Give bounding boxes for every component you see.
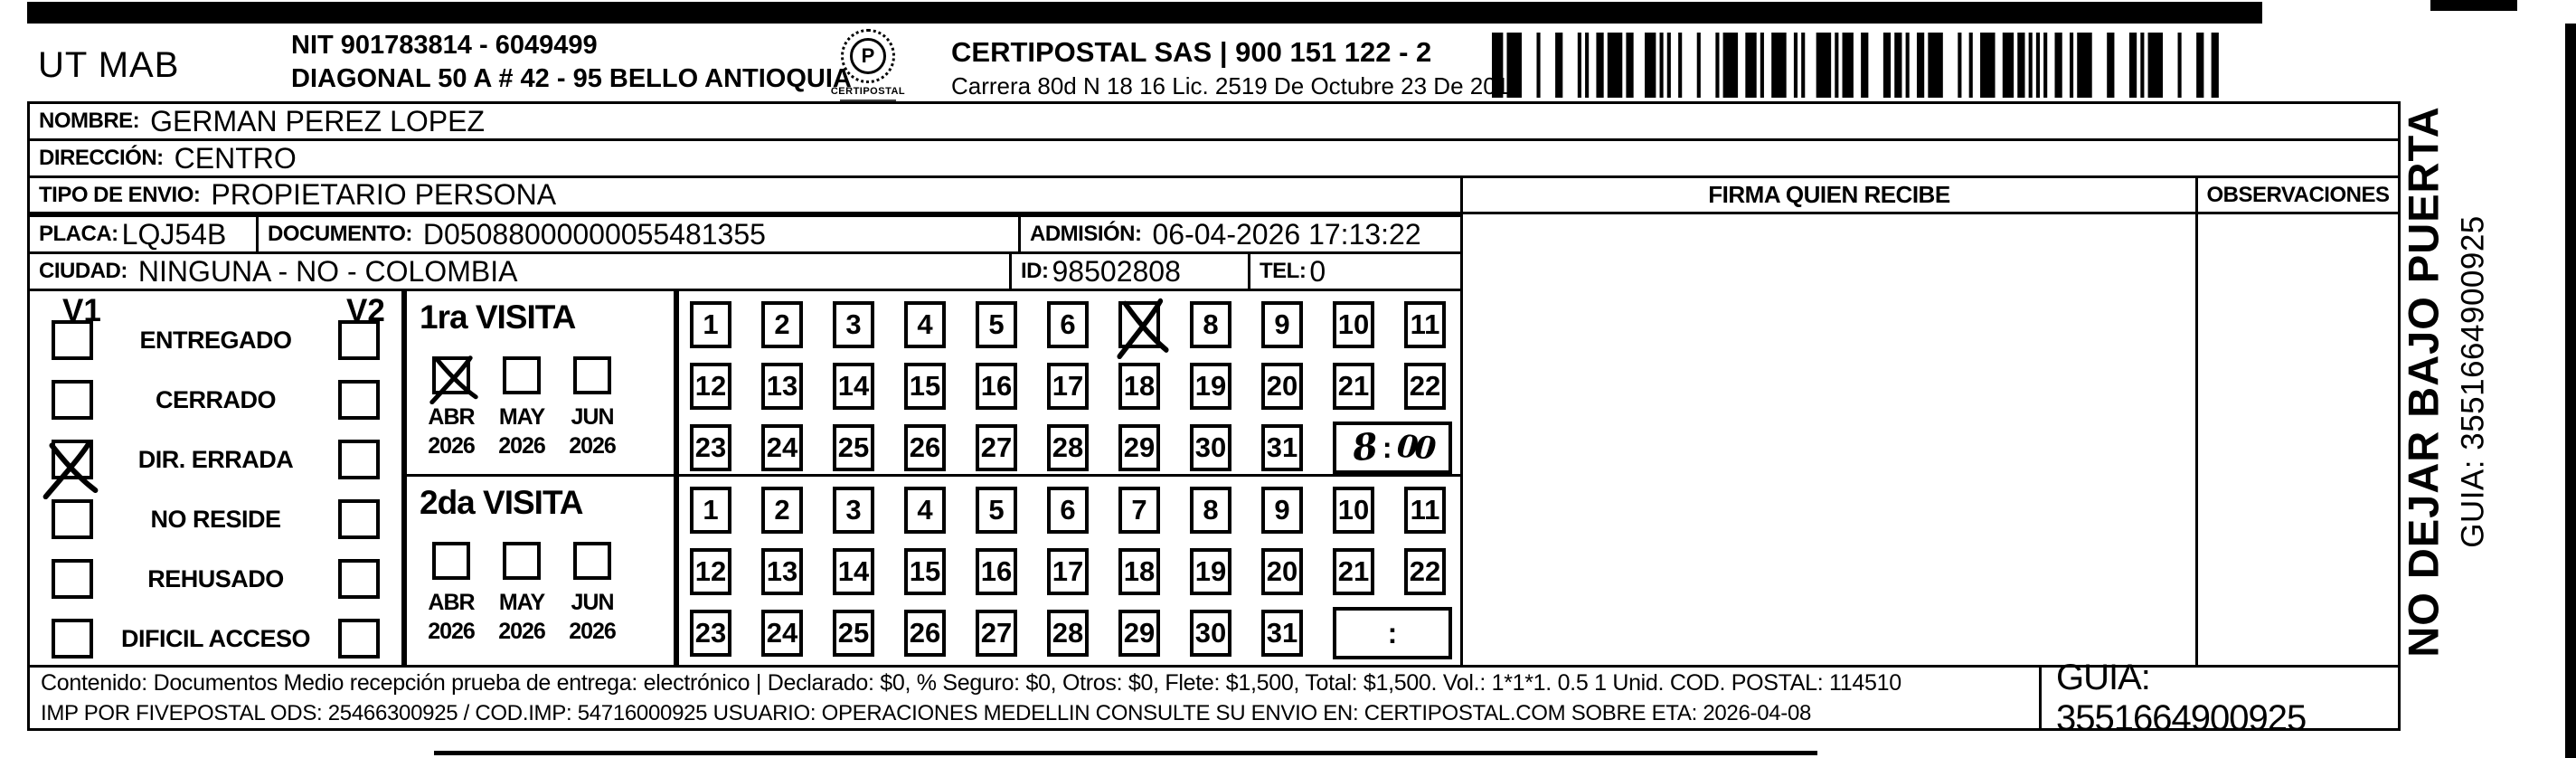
month-year: 2026 <box>569 433 616 460</box>
row-documento: DOCUMENTO: D05088000000055481355 <box>256 214 1021 254</box>
visit2-day-2[interactable]: 2 <box>761 487 803 534</box>
documento-label: DOCUMENTO: <box>268 222 412 247</box>
month-year: 2026 <box>428 433 475 460</box>
footer-guia-box: GUIA: 3551664900925 <box>2039 665 2401 731</box>
company-name: CERTIPOSTAL SAS | 900 151 122 - 2 <box>951 36 1431 69</box>
firma-header: FIRMA QUIEN RECIBE <box>1460 175 2198 214</box>
row-tel: TEL: 0 <box>1248 251 1463 291</box>
checkbox-v1-dir-errada[interactable] <box>52 440 93 479</box>
documento-value: D05088000000055481355 <box>423 218 766 251</box>
visit1-month-row: ABR2026MAY2026JUN2026 <box>420 356 624 460</box>
visit2-month-group: 2da VISITA ABR2026MAY2026JUN2026 <box>404 474 676 668</box>
visit1-month-checkbox-jun[interactable] <box>573 356 611 394</box>
visit2-day-13[interactable]: 13 <box>761 548 803 595</box>
status-row-dir-errada: DIR. ERRADA <box>30 440 401 479</box>
visit1-day-28[interactable]: 28 <box>1047 424 1089 471</box>
id-label: ID: <box>1021 259 1049 284</box>
month-label: MAY <box>499 404 544 431</box>
checkbox-v2-no-reside[interactable] <box>338 499 380 539</box>
tipo-envio-label: TIPO DE ENVIO: <box>39 183 200 208</box>
row-tipo-envio: TIPO DE ENVIO: PROPIETARIO PERSONA <box>27 175 1463 214</box>
status-row-dificil-acceso: DIFICIL ACCESO <box>30 619 401 659</box>
visit1-day-10[interactable]: 10 <box>1333 301 1374 348</box>
visit1-day-21[interactable]: 21 <box>1333 363 1374 410</box>
visit1-day-1[interactable]: 1 <box>690 301 731 348</box>
row-placa: PLACA: LQJ54B <box>27 214 259 254</box>
footer-details: Contenido: Documentos Medio recepción pr… <box>27 665 2042 731</box>
side-warning-block: NO DEJAR BAJO PUERTA GUIA: 3551664900925 <box>2399 106 2492 657</box>
visit1-day-29[interactable]: 29 <box>1118 424 1160 471</box>
visit2-day-17[interactable]: 17 <box>1047 548 1089 595</box>
checkbox-v1-entregado[interactable] <box>52 320 93 360</box>
visit1-month-checkbox-abr[interactable] <box>432 356 470 394</box>
status-row-rehusado: REHUSADO <box>30 559 401 599</box>
visit2-day-7[interactable]: 7 <box>1118 487 1160 534</box>
id-value: 98502808 <box>1052 255 1181 289</box>
footer-line1: Contenido: Documentos Medio recepción pr… <box>41 670 1901 696</box>
visit2-day-18[interactable]: 18 <box>1118 548 1160 595</box>
status-label-dificil-acceso: DIFICIL ACCESO <box>93 625 338 653</box>
visit2-day-25[interactable]: 25 <box>833 610 874 657</box>
visit2-day-11[interactable]: 11 <box>1404 487 1446 534</box>
visit2-day-15[interactable]: 15 <box>904 548 946 595</box>
nombre-value: GERMAN PEREZ LOPEZ <box>150 105 485 138</box>
scan-artifact-top <box>27 2 2262 24</box>
sender-code: UT MAB <box>38 45 179 86</box>
admision-value: 06-04-2026 17:13:22 <box>1153 218 1421 251</box>
checkbox-v2-dificil-acceso[interactable] <box>338 619 380 659</box>
logo-p-icon: P <box>850 38 886 74</box>
visit1-day-row-3: 2324252627282930318:00 <box>690 424 1460 474</box>
visit1-day-row-1: 123456891011 <box>690 301 1460 348</box>
visit2-day-19[interactable]: 19 <box>1190 548 1231 595</box>
visit1-day-14[interactable]: 14 <box>833 363 874 410</box>
firma-signature-area[interactable] <box>1460 212 2198 668</box>
checkbox-v1-no-reside[interactable] <box>52 499 93 539</box>
visit1-day-17[interactable]: 17 <box>1047 363 1089 410</box>
observaciones-header: OBSERVACIONES <box>2195 175 2401 214</box>
visit1-day-23[interactable]: 23 <box>690 424 731 471</box>
visit1-day-7[interactable] <box>1118 301 1160 348</box>
visit2-month-abr: ABR2026 <box>420 542 483 645</box>
month-label: ABR <box>428 590 474 616</box>
scan-artifact-right-edge <box>2565 24 2576 758</box>
visit1-day-4[interactable]: 4 <box>904 301 946 348</box>
row-ciudad: CIUDAD: NINGUNA - NO - COLOMBIA <box>27 251 1012 291</box>
month-year: 2026 <box>498 619 545 645</box>
ciudad-value: NINGUNA - NO - COLOMBIA <box>138 255 518 289</box>
visit2-day-row-1: 1234567891011 <box>690 487 1460 534</box>
visit2-day-5[interactable]: 5 <box>976 487 1017 534</box>
month-label: JUN <box>571 404 613 431</box>
visit1-day-rows: 1234568910111213141516171819202122232425… <box>679 291 1460 474</box>
visit1-month-abr: ABR2026 <box>420 356 483 460</box>
visit1-time-colon: : <box>1382 431 1392 465</box>
status-column: V1 V2 ENTREGADOCERRADODIR. ERRADANO RESI… <box>27 289 404 668</box>
visit1-day-2[interactable]: 2 <box>761 301 803 348</box>
visit1-month-checkbox-may[interactable] <box>503 356 541 394</box>
visit2-day-29[interactable]: 29 <box>1118 610 1160 657</box>
scan-artifact-bottom <box>434 751 1817 755</box>
visit2-day-4[interactable]: 4 <box>904 487 946 534</box>
visit2-day-28[interactable]: 28 <box>1047 610 1089 657</box>
visit1-day-30[interactable]: 30 <box>1190 424 1231 471</box>
status-row-entregado: ENTREGADO <box>30 320 401 360</box>
visit2-day-row-2: 1213141516171819202122 <box>690 548 1460 595</box>
visit1-day-27[interactable]: 27 <box>976 424 1017 471</box>
checkbox-v1-cerrado[interactable] <box>52 380 93 420</box>
visit2-day-14[interactable]: 14 <box>833 548 874 595</box>
visit1-day-15[interactable]: 15 <box>904 363 946 410</box>
visit2-day-16[interactable]: 16 <box>976 548 1017 595</box>
visit2-time-box[interactable]: : <box>1333 607 1452 659</box>
logo-text: CERTIPOSTAL <box>831 86 905 97</box>
admision-label: ADMISIÓN: <box>1030 222 1142 247</box>
status-row-cerrado: CERRADO <box>30 380 401 420</box>
visit1-day-grid: 1234568910111213141516171819202122232425… <box>676 289 1463 477</box>
visit2-day-rows: 1234567891011121314151617181920212223242… <box>679 477 1460 665</box>
nombre-label: NOMBRE: <box>39 109 139 134</box>
placa-label: PLACA: <box>39 222 118 247</box>
visit2-month-row: ABR2026MAY2026JUN2026 <box>420 542 624 645</box>
visit1-day-5[interactable]: 5 <box>976 301 1017 348</box>
visit1-day-11[interactable]: 11 <box>1404 301 1446 348</box>
visit2-day-9[interactable]: 9 <box>1261 487 1303 534</box>
tel-label: TEL: <box>1260 259 1306 284</box>
visit2-day-10[interactable]: 10 <box>1333 487 1374 534</box>
no-dejar-warning: NO DEJAR BAJO PUERTA <box>2399 106 2449 657</box>
visit1-title: 1ra VISITA <box>420 298 575 336</box>
visit1-time-box[interactable]: 8:00 <box>1333 422 1452 474</box>
month-label: JUN <box>571 590 613 616</box>
visit1-day-24[interactable]: 24 <box>761 424 803 471</box>
status-label-rehusado: REHUSADO <box>93 565 338 593</box>
visit2-day-12[interactable]: 12 <box>690 548 731 595</box>
visit1-day-6[interactable]: 6 <box>1047 301 1089 348</box>
visit2-day-6[interactable]: 6 <box>1047 487 1089 534</box>
sender-nit: NIT 901783814 - 6049499 <box>291 31 598 61</box>
visit2-month-checkbox-may[interactable] <box>503 542 541 580</box>
company-license: Carrera 80d N 18 16 Lic. 2519 De Octubre… <box>951 72 1523 100</box>
visit2-month-jun: JUN2026 <box>561 542 624 645</box>
row-admision: ADMISIÓN: 06-04-2026 17:13:22 <box>1018 214 1463 254</box>
visit2-month-checkbox-jun[interactable] <box>573 542 611 580</box>
visit2-title: 2da VISITA <box>420 484 583 522</box>
visit1-day-22[interactable]: 22 <box>1404 363 1446 410</box>
barcode-svg <box>1492 33 2222 98</box>
scan-artifact-top-right <box>2430 0 2517 11</box>
visit1-day-8[interactable]: 8 <box>1190 301 1231 348</box>
visit1-day-31[interactable]: 31 <box>1261 424 1303 471</box>
month-year: 2026 <box>569 619 616 645</box>
direccion-label: DIRECCIÓN: <box>39 146 164 171</box>
visit2-day-row-3: 232425262728293031: <box>690 610 1460 659</box>
shipping-label-scan: UT MAB NIT 901783814 - 6049499 DIAGONAL … <box>0 0 2576 758</box>
visit2-day-31[interactable]: 31 <box>1261 610 1303 657</box>
checkbox-v2-rehusado[interactable] <box>338 559 380 599</box>
visit1-month-may: MAY2026 <box>490 356 553 460</box>
visit2-day-20[interactable]: 20 <box>1261 548 1303 595</box>
placa-value: LQJ54B <box>122 218 227 251</box>
month-label: MAY <box>499 590 544 616</box>
status-label-dir-errada: DIR. ERRADA <box>93 446 338 474</box>
visit2-day-30[interactable]: 30 <box>1190 610 1231 657</box>
visit2-day-21[interactable]: 21 <box>1333 548 1374 595</box>
checkbox-v2-entregado[interactable] <box>338 320 380 360</box>
tipo-envio-value: PROPIETARIO PERSONA <box>211 178 556 212</box>
status-label-no-reside: NO RESIDE <box>93 506 338 534</box>
observaciones-area[interactable] <box>2195 212 2401 668</box>
status-label-entregado: ENTREGADO <box>93 327 338 355</box>
visit2-day-26[interactable]: 26 <box>904 610 946 657</box>
visit1-day-18[interactable]: 18 <box>1118 363 1160 410</box>
checkbox-v1-dificil-acceso[interactable] <box>52 619 93 659</box>
visit2-month-may: MAY2026 <box>490 542 553 645</box>
visit1-day-25[interactable]: 25 <box>833 424 874 471</box>
visit1-day-19[interactable]: 19 <box>1190 363 1231 410</box>
checkbox-v2-dir-errada[interactable] <box>338 440 380 479</box>
visit1-day-3[interactable]: 3 <box>833 301 874 348</box>
sender-address: DIAGONAL 50 A # 42 - 95 BELLO ANTIOQUIA <box>291 64 852 94</box>
visit2-day-8[interactable]: 8 <box>1190 487 1231 534</box>
status-label-cerrado: CERRADO <box>93 386 338 414</box>
visit2-day-grid: 1234567891011121314151617181920212223242… <box>676 474 1463 668</box>
visit1-handwritten-minutes: 00 <box>1395 431 1433 465</box>
footer-line2: IMP POR FIVEPOSTAL ODS: 25466300925 / CO… <box>41 701 1811 726</box>
row-nombre: NOMBRE: GERMAN PEREZ LOPEZ <box>27 101 2401 141</box>
ciudad-label: CIUDAD: <box>39 259 127 284</box>
visit1-day-9[interactable]: 9 <box>1261 301 1303 348</box>
status-rows: ENTREGADOCERRADODIR. ERRADANO RESIDEREHU… <box>30 291 401 665</box>
visit1-day-row-2: 1213141516171819202122 <box>690 363 1460 410</box>
visit1-day-16[interactable]: 16 <box>976 363 1017 410</box>
logo-ring-icon: P <box>841 29 895 83</box>
row-direccion: DIRECCIÓN: CENTRO <box>27 138 2401 178</box>
direccion-value: CENTRO <box>175 142 297 175</box>
visit1-month-group: 1ra VISITA ABR2026MAY2026JUN2026 <box>404 289 676 477</box>
month-year: 2026 <box>498 433 545 460</box>
certipostal-logo: P CERTIPOSTAL <box>828 29 908 102</box>
visit2-month-checkbox-abr[interactable] <box>432 542 470 580</box>
checkbox-v1-rehusado[interactable] <box>52 559 93 599</box>
visit2-day-27[interactable]: 27 <box>976 610 1017 657</box>
status-row-no-reside: NO RESIDE <box>30 499 401 539</box>
visit2-time-colon: : <box>1388 617 1398 650</box>
barcode <box>1492 33 2222 98</box>
month-label: ABR <box>428 404 474 431</box>
visit1-handwritten-hour: 8 <box>1351 429 1380 468</box>
month-year: 2026 <box>428 619 475 645</box>
checkbox-v2-cerrado[interactable] <box>338 380 380 420</box>
tel-value: 0 <box>1309 255 1326 289</box>
visit1-month-jun: JUN2026 <box>561 356 624 460</box>
visit1-day-12[interactable]: 12 <box>690 363 731 410</box>
row-id: ID: 98502808 <box>1009 251 1250 291</box>
visit1-day-13[interactable]: 13 <box>761 363 803 410</box>
visit2-day-23[interactable]: 23 <box>690 610 731 657</box>
visit1-day-26[interactable]: 26 <box>904 424 946 471</box>
visit1-day-20[interactable]: 20 <box>1261 363 1303 410</box>
side-guia-number: GUIA: 3551664900925 <box>2456 215 2492 548</box>
visit2-day-3[interactable]: 3 <box>833 487 874 534</box>
visit2-day-22[interactable]: 22 <box>1404 548 1446 595</box>
visit2-day-24[interactable]: 24 <box>761 610 803 657</box>
visit2-day-1[interactable]: 1 <box>690 487 731 534</box>
